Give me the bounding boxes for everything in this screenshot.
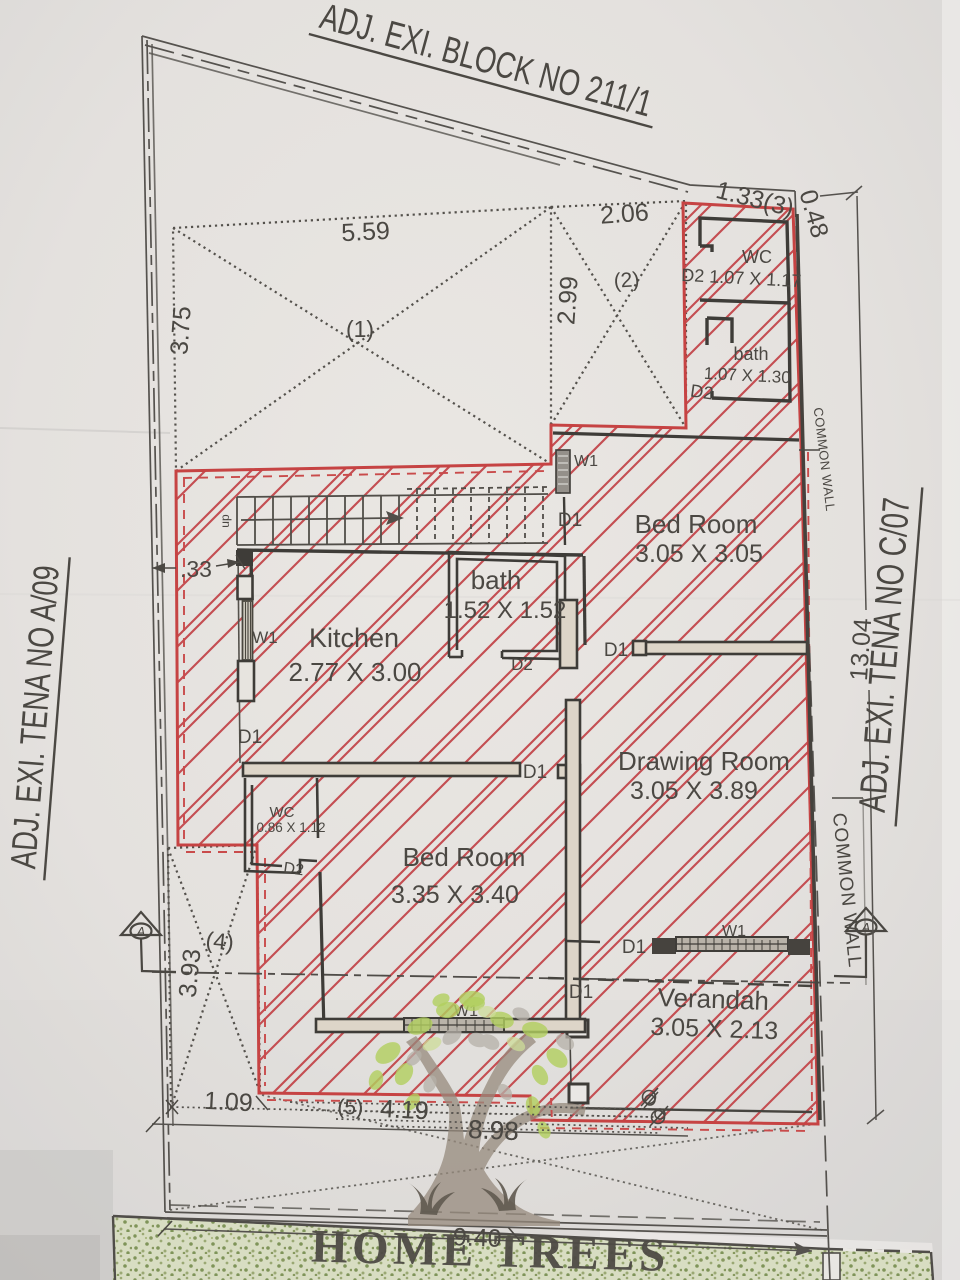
svg-text:W1: W1: [722, 923, 746, 940]
svg-text:bath: bath: [733, 344, 768, 364]
svg-text:D1: D1: [569, 982, 593, 1003]
svg-text:(2): (2): [613, 268, 640, 293]
svg-text:3.05 X 2.13: 3.05 X 2.13: [650, 1013, 779, 1045]
svg-text:bath: bath: [471, 565, 522, 595]
svg-text:3.05 X 3.05: 3.05 X 3.05: [635, 540, 763, 568]
svg-text:D1: D1: [523, 762, 547, 783]
svg-text:Drawing Room: Drawing Room: [618, 746, 790, 776]
svg-text:Bed Room: Bed Room: [403, 842, 526, 872]
svg-text:WC: WC: [742, 247, 772, 267]
svg-text:D1: D1: [622, 937, 646, 958]
svg-text:(5): (5): [337, 1095, 364, 1119]
svg-text:HOME TREES: HOME TREES: [310, 1221, 670, 1280]
svg-text:W1: W1: [252, 628, 278, 647]
svg-text:up: up: [218, 514, 232, 528]
svg-text:Kitchen: Kitchen: [309, 623, 399, 653]
svg-text:Verandah: Verandah: [657, 982, 769, 1016]
svg-text:W1: W1: [574, 453, 598, 470]
svg-text:2.77 X 3.00: 2.77 X 3.00: [289, 657, 422, 687]
svg-text:Bed Room: Bed Room: [635, 509, 758, 539]
svg-text:.33: .33: [180, 556, 212, 582]
svg-text:4.19: 4.19: [379, 1095, 429, 1126]
svg-text:A: A: [136, 924, 146, 939]
svg-text:1.09: 1.09: [203, 1087, 253, 1118]
svg-text:3.35 X 3.40: 3.35 X 3.40: [391, 881, 519, 909]
svg-text:D2: D2: [282, 860, 305, 880]
svg-text:D2: D2: [511, 655, 533, 674]
svg-text:3.05 X 3.89: 3.05 X 3.89: [630, 777, 758, 805]
svg-text:5.59: 5.59: [341, 217, 391, 248]
svg-text:D1: D1: [558, 510, 582, 531]
svg-text:D1: D1: [238, 727, 262, 748]
svg-text:(1): (1): [346, 316, 374, 342]
svg-text:8.98: 8.98: [467, 1114, 519, 1146]
svg-text:D1: D1: [604, 640, 628, 661]
svg-text:3.75: 3.75: [165, 305, 196, 356]
svg-text:1.52 X 1.52: 1.52 X 1.52: [444, 597, 567, 624]
svg-text:3.93: 3.93: [174, 947, 207, 998]
svg-text:WC: WC: [270, 804, 295, 821]
svg-text:0.86 X 1.12: 0.86 X 1.12: [256, 820, 325, 835]
svg-text:D2: D2: [689, 381, 715, 404]
svg-text:2.99: 2.99: [552, 275, 583, 326]
svg-text:(4): (4): [204, 927, 235, 956]
svg-text:2.06: 2.06: [599, 198, 650, 229]
svg-text:13.04: 13.04: [845, 617, 877, 681]
